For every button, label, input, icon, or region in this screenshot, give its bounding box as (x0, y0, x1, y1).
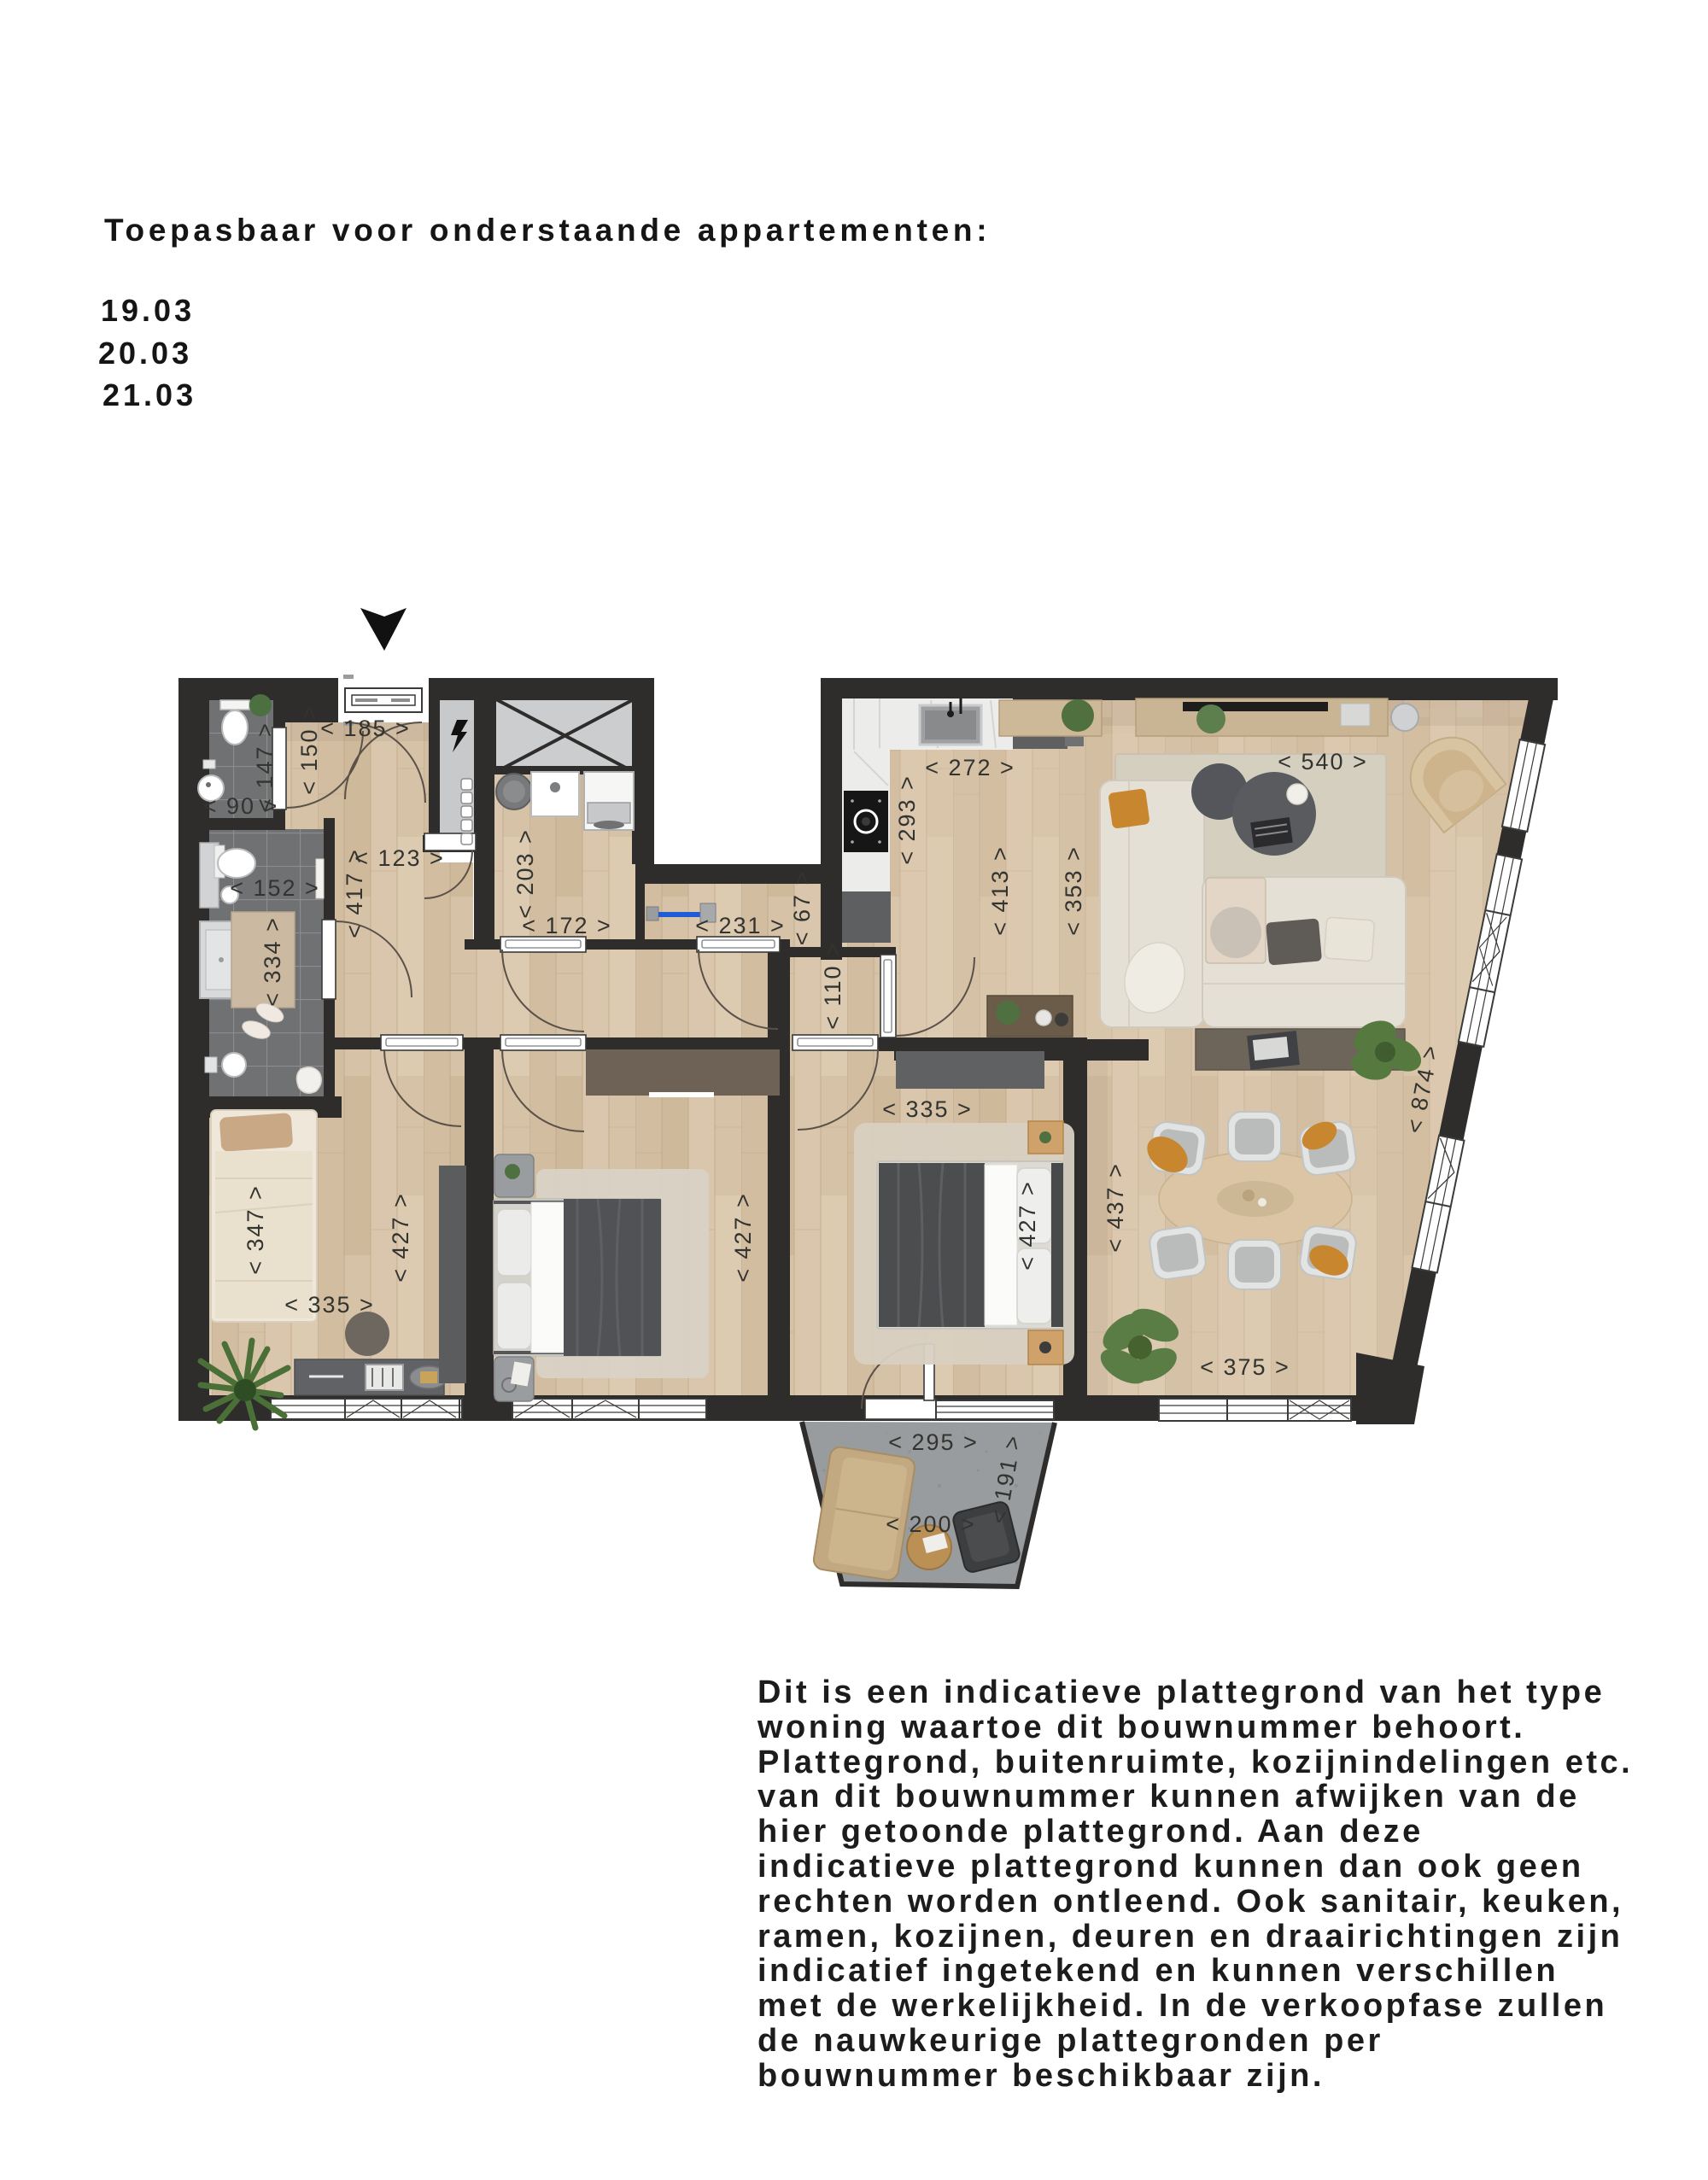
svg-text:< 272 >: < 272 > (925, 755, 1015, 780)
svg-text:< 427 >: < 427 > (388, 1192, 413, 1283)
svg-text:< 123 >: < 123 > (354, 845, 445, 871)
svg-text:< 427 >: < 427 > (1015, 1180, 1040, 1271)
svg-text:< 200 >: < 200 > (886, 1511, 976, 1537)
svg-text:< 185 >: < 185 > (320, 716, 411, 741)
svg-text:< 110 >: < 110 > (820, 941, 845, 1030)
svg-text:< 347 >: < 347 > (243, 1184, 268, 1275)
svg-text:< 334 >: < 334 > (260, 916, 285, 1007)
svg-text:< 417 >: < 417 > (342, 848, 367, 938)
svg-text:< 295 >: < 295 > (888, 1429, 979, 1455)
svg-text:< 437 >: < 437 > (1103, 1162, 1128, 1253)
svg-text:< 353 >: < 353 > (1061, 845, 1086, 936)
svg-text:< 150 >: < 150 > (296, 704, 322, 795)
svg-text:< 231 >: < 231 > (695, 913, 786, 938)
svg-text:< 203 >: < 203 > (512, 828, 538, 919)
svg-text:< 413 >: < 413 > (987, 845, 1013, 936)
svg-text:< 293 >: < 293 > (894, 774, 920, 865)
svg-text:< 147 >: < 147 > (252, 722, 278, 812)
svg-text:< 375 >: < 375 > (1200, 1354, 1290, 1380)
svg-text:< 427 >: < 427 > (730, 1192, 756, 1283)
svg-text:< 335 >: < 335 > (284, 1292, 375, 1318)
svg-text:< 335 >: < 335 > (882, 1096, 973, 1122)
svg-text:< 540 >: < 540 > (1278, 749, 1368, 774)
svg-text:< 67 >: < 67 > (789, 870, 815, 946)
svg-text:< 152 >: < 152 > (230, 875, 320, 901)
